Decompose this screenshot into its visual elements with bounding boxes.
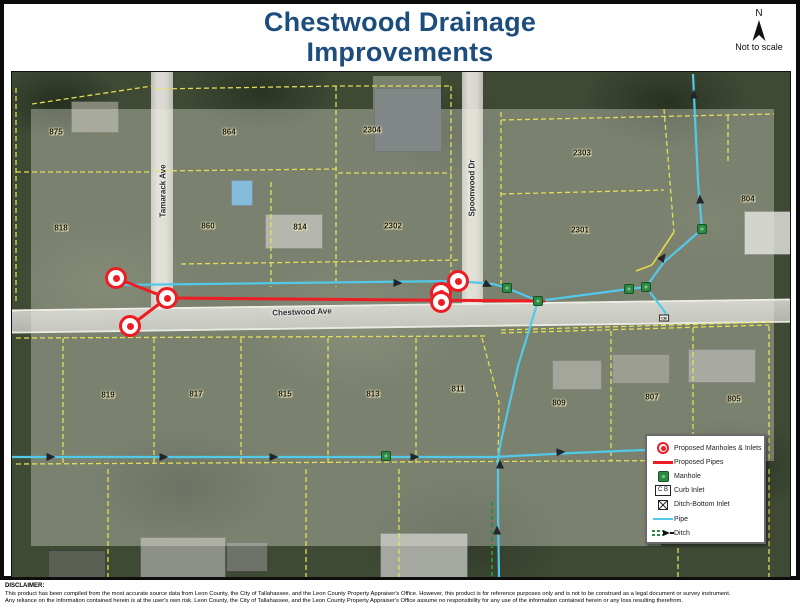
flow-arrow-icon xyxy=(690,89,698,98)
flow-arrow-icon xyxy=(556,448,565,456)
manhole-icon xyxy=(652,471,674,482)
pipe-icon xyxy=(652,518,674,521)
parcel-label-819: 819 xyxy=(101,391,114,400)
legend-item-proposed-pipes: Proposed Pipes xyxy=(652,455,760,469)
proposed-manhole-symbol xyxy=(105,267,127,289)
parcel-label-807: 807 xyxy=(645,393,658,402)
parcel-label-814: 814 xyxy=(293,223,306,232)
parcel-label-875: 875 xyxy=(49,128,62,137)
manhole-symbol xyxy=(641,282,651,292)
street-label: Chestwood Ave xyxy=(272,306,332,317)
flow-arrow-icon xyxy=(657,251,669,263)
disclaimer-line-1: This product has been compiled from the … xyxy=(5,591,797,598)
flow-arrow-icon xyxy=(411,453,420,461)
proposed-manhole-symbol xyxy=(430,291,452,313)
flow-arrow-icon xyxy=(160,453,169,461)
parcel-label-2303: 2303 xyxy=(573,149,591,158)
parcel-label-804: 804 xyxy=(741,195,754,204)
legend-item-proposed-manholes: Proposed Manholes & Inlets xyxy=(652,441,760,455)
parcel-label-2301: 2301 xyxy=(571,226,589,235)
map-legend: Proposed Manholes & Inlets Proposed Pipe… xyxy=(645,434,766,544)
parcel-label-809: 809 xyxy=(552,399,565,408)
flow-arrow-icon xyxy=(270,453,279,461)
parcel-label-860: 860 xyxy=(201,222,214,231)
parcel-label-2302: 2302 xyxy=(384,222,402,231)
legend-item-curb-inlet: C B Curb Inlet xyxy=(652,484,760,498)
title-line-1: Chestwood Drainage xyxy=(0,8,800,38)
parcel-label-815: 815 xyxy=(278,390,291,399)
flow-arrow-icon xyxy=(493,526,501,535)
street-label: Spoonwood Dr xyxy=(468,160,477,217)
proposed-manhole-icon xyxy=(652,442,674,454)
parcel-label-811: 811 xyxy=(452,385,465,394)
ditch-bottom-inlet-icon xyxy=(652,500,674,510)
parcel-label-805: 805 xyxy=(727,395,740,404)
manhole-symbol xyxy=(533,296,543,306)
legend-item-pipe: Pipe xyxy=(652,512,760,526)
flow-arrow-icon xyxy=(482,279,494,290)
parcel-label-817: 817 xyxy=(189,390,202,399)
scale-note: Not to scale xyxy=(726,42,792,52)
street-label: Tamarack Ave xyxy=(159,164,168,217)
flow-arrow-icon xyxy=(393,279,402,287)
disclaimer-heading: DISCLAIMER: xyxy=(5,583,797,591)
manhole-symbol xyxy=(697,224,707,234)
north-arrow-icon xyxy=(750,20,768,42)
flow-arrow-icon xyxy=(696,194,704,203)
parcel-label-864: 864 xyxy=(222,128,235,137)
page-title: Chestwood Drainage Improvements xyxy=(0,8,800,67)
legend-item-ditch: Ditch xyxy=(652,526,760,540)
manhole-symbol xyxy=(624,284,634,294)
curb-inlet-symbol: CB xyxy=(659,315,669,322)
north-arrow: N Not to scale xyxy=(726,9,792,52)
proposed-pipe-icon xyxy=(652,461,674,464)
disclaimer: DISCLAIMER: This product has been compil… xyxy=(5,583,797,605)
flow-arrow-icon xyxy=(47,453,56,461)
parcel-label-813: 813 xyxy=(366,390,379,399)
aerial-map: 8758642304230380481886081423022301819817… xyxy=(11,71,791,578)
parcel-label-2304: 2304 xyxy=(363,126,381,135)
title-line-2: Improvements xyxy=(0,38,800,68)
flow-arrow-icon xyxy=(496,460,504,469)
legend-item-ditch-bottom-inlet: Ditch-Bottom Inlet xyxy=(652,498,760,512)
legend-item-manhole: Manhole xyxy=(652,469,760,483)
disclaimer-line-2: Any reliance on the information containe… xyxy=(5,598,797,605)
manhole-symbol xyxy=(381,451,391,461)
north-label: N xyxy=(726,9,792,19)
manhole-symbol xyxy=(502,283,512,293)
ditch-icon xyxy=(652,530,674,536)
proposed-manhole-symbol xyxy=(156,287,178,309)
curb-inlet-icon: C B xyxy=(652,485,674,496)
parcel-label-818: 818 xyxy=(54,224,67,233)
proposed-manhole-symbol xyxy=(119,315,141,337)
